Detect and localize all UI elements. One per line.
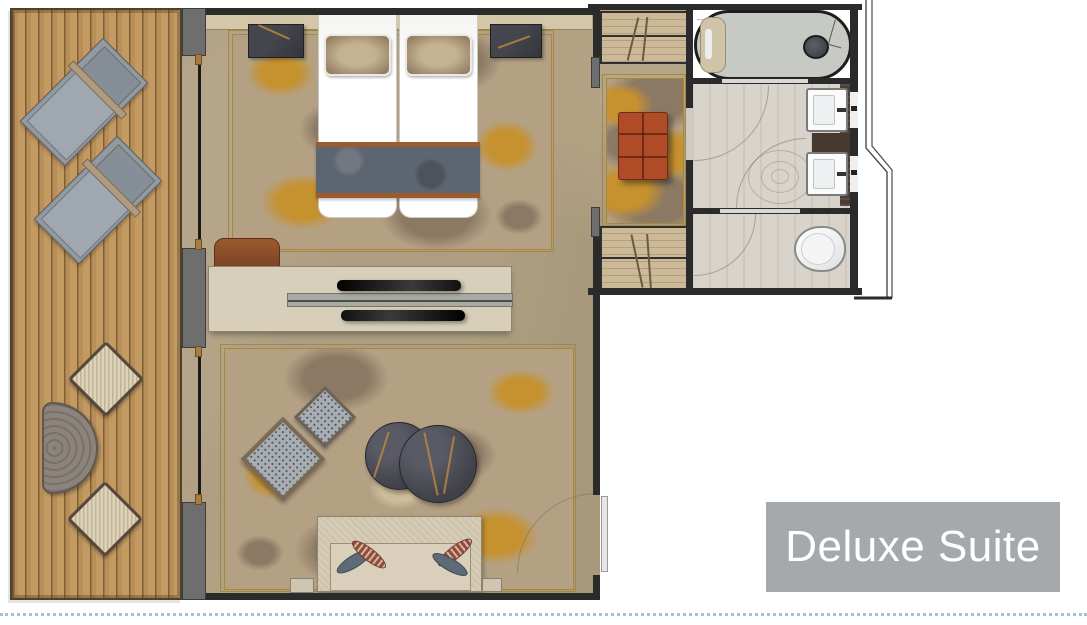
shower-bench	[700, 17, 726, 73]
hanging-rod-marks	[627, 17, 640, 60]
ship-hull-outline	[840, 0, 900, 310]
coffee-table-icon	[399, 425, 477, 503]
tv-screen-icon	[341, 310, 465, 321]
nightstand-icon	[248, 24, 304, 58]
ottoman-icon	[618, 112, 668, 180]
door-handle-icon	[195, 494, 202, 505]
sofa-icon	[317, 516, 482, 592]
door-handle-icon	[195, 346, 202, 357]
bottom-wall	[588, 288, 862, 295]
right-wall	[593, 237, 600, 495]
shower-icon	[694, 10, 852, 80]
wall-step	[482, 578, 502, 592]
bench-icon	[214, 238, 280, 268]
living-bottom-wall	[182, 593, 600, 600]
toilet-icon	[794, 226, 846, 272]
bed-runner	[316, 142, 480, 198]
bedroom-top-wall	[182, 8, 600, 15]
toilet-seat	[801, 233, 835, 265]
sliding-glass-door-icon	[198, 350, 201, 500]
console-rail	[287, 293, 513, 307]
door-handle-icon	[195, 54, 202, 65]
floor-plan: Deluxe Suite	[0, 0, 1087, 625]
wall-step	[290, 578, 314, 593]
bathroom-door-gap	[686, 108, 693, 160]
tv-screen-icon	[337, 280, 461, 291]
balcony-wall-block	[182, 8, 206, 56]
top-wall	[588, 4, 862, 10]
basin	[813, 95, 835, 125]
hanging-rod-marks	[642, 17, 649, 61]
partition-wall-end	[591, 57, 600, 88]
balcony-wall-block	[182, 248, 206, 348]
wardrobe-icon	[600, 226, 688, 292]
shower-head-icon	[803, 35, 829, 59]
door-handle-icon	[195, 239, 202, 250]
glass-door-track	[720, 209, 800, 213]
nightstand-icon	[490, 24, 542, 58]
room-type-label-text: Deluxe Suite	[785, 522, 1040, 572]
basin	[813, 159, 835, 189]
room-type-label: Deluxe Suite	[766, 502, 1060, 592]
hanging-rod-marks	[646, 234, 652, 288]
wardrobe-icon	[600, 11, 688, 64]
partition-wall	[593, 8, 600, 57]
right-wall	[593, 575, 600, 600]
shower-bench-towel	[705, 29, 712, 59]
sliding-glass-door-icon	[198, 58, 201, 246]
footer-dotted-line	[0, 613, 1087, 616]
hanging-rod-marks	[630, 234, 643, 287]
entry-door-icon	[601, 496, 608, 572]
double-bed	[318, 8, 478, 218]
pillow-icon	[405, 34, 472, 76]
pillow-icon	[324, 34, 391, 76]
balcony-wall-block	[182, 502, 206, 600]
tv-console	[208, 266, 512, 332]
glass-door-track	[722, 79, 808, 83]
partition-wall-end	[591, 207, 600, 237]
